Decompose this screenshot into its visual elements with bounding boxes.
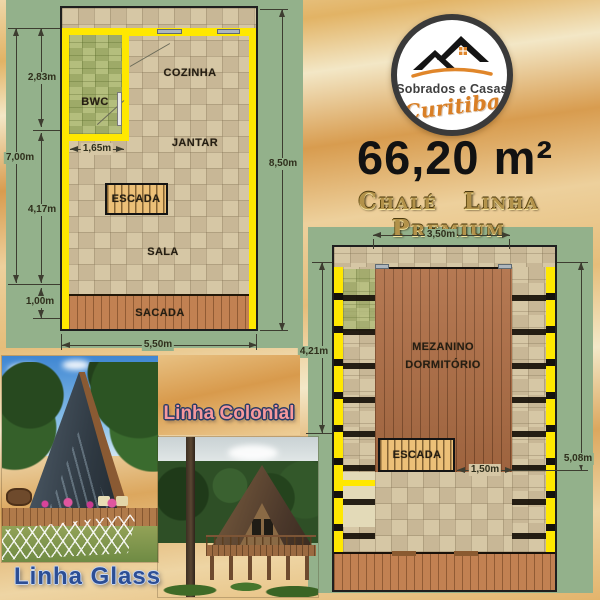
upper-stairs: ESCADA <box>378 438 455 472</box>
roof-beams <box>343 267 375 552</box>
dim-ext <box>373 239 374 249</box>
dim-tick <box>557 262 588 263</box>
dim-arrow-left <box>457 467 465 473</box>
cloud <box>228 445 278 461</box>
poster-canvas: BWC COZINHA JANTAR SALA 1,65m ESCADA SAC… <box>0 0 600 600</box>
room-label-mezzanine-1: MEZANINO <box>412 341 474 353</box>
dim-arrow-up <box>319 262 325 270</box>
dim-ext <box>509 239 510 249</box>
dim-label-total-depth: 8,50m <box>267 158 299 170</box>
dim-arrow-right <box>505 467 513 473</box>
dim-tick <box>513 470 588 471</box>
right-wall <box>546 267 555 552</box>
dim-line <box>282 9 283 331</box>
dim-arrow-right <box>116 146 124 152</box>
left-wall <box>334 267 343 552</box>
dim-label-ground-width: 5,50m <box>142 339 174 351</box>
window-sill <box>157 29 182 34</box>
bwc-room: BWC <box>62 28 129 141</box>
dim-arrow-left <box>373 232 381 238</box>
colonial-caption-patch: Linha Colonial <box>158 355 300 435</box>
dim-tick <box>8 284 60 285</box>
dim-tick <box>260 330 288 331</box>
room-label-dining: JANTAR <box>172 137 218 149</box>
room-label-upper-stairs: ESCADA <box>393 449 442 461</box>
dim-arrow-down <box>38 275 44 283</box>
flowers <box>30 496 130 512</box>
upper-floor-plan: ESCADA MEZANINO DORMITÓRIO 1,50m <box>332 245 557 592</box>
cabin-window <box>252 519 261 535</box>
grass <box>158 563 318 597</box>
bwc-door-leaf <box>117 92 122 126</box>
dim-line <box>581 262 582 470</box>
ground-stairs: ESCADA <box>105 183 168 215</box>
dim-label-stairs-width: 1,50m <box>469 464 501 476</box>
deck-threshold <box>454 551 478 556</box>
dim-arrow-left <box>62 342 70 348</box>
dim-arrow-down <box>38 310 44 318</box>
photo-glass-aframe <box>2 356 158 562</box>
area-value: 66,20 m² <box>320 130 590 185</box>
photo-colonial-aframe <box>158 437 318 597</box>
window-sill <box>498 264 512 269</box>
mezzanine-area: ESCADA MEZANINO DORMITÓRIO 1,50m <box>375 267 512 552</box>
house-roof-icon <box>409 30 495 82</box>
right-roof-strip <box>512 267 546 552</box>
dim-tick <box>306 433 332 434</box>
dim-tick <box>33 130 60 131</box>
entry-door-swing <box>130 43 170 67</box>
room-label-bwc: BWC <box>81 96 108 108</box>
room-label-mezzanine-2: DORMITÓRIO <box>405 359 481 371</box>
dim-label-living-height: 4,17m <box>26 204 58 216</box>
right-wall <box>249 28 256 329</box>
window-sill <box>217 29 240 34</box>
deck-threshold <box>392 551 416 556</box>
brand-logo: Sobrados e Casas Curitiba <box>391 14 513 136</box>
room-label-living: SALA <box>147 246 179 258</box>
dim-arrow-up <box>578 262 584 270</box>
upper-deck <box>334 552 555 590</box>
colonial-caption: Linha Colonial <box>164 403 295 425</box>
dim-label-bwc-width: 1,65m <box>81 143 113 155</box>
room-label-kitchen: COZINHA <box>164 67 217 79</box>
dim-label-bwc-height: 2,83m <box>26 72 58 84</box>
dim-arrow-right <box>502 232 510 238</box>
dim-arrow-up <box>38 133 44 141</box>
dim-tick <box>33 318 60 319</box>
ground-floor-plan: BWC COZINHA JANTAR SALA 1,65m ESCADA SAC… <box>60 6 258 331</box>
roof-beams <box>512 267 546 552</box>
room-label-balcony: SACADA <box>135 307 184 319</box>
dim-tick <box>260 9 288 10</box>
dim-arrow-up <box>38 28 44 36</box>
dim-tick <box>8 28 60 29</box>
open-below-area <box>375 472 512 552</box>
dim-tick <box>312 262 332 263</box>
dim-label-balcony-depth: 1,00m <box>24 296 56 308</box>
left-roof-strip <box>343 267 375 552</box>
dim-arrow-left <box>70 146 78 152</box>
dim-arrow-right <box>249 342 257 348</box>
glass-caption: Linha Glass <box>14 563 161 591</box>
dim-label-total-height: 7,00m <box>4 152 36 164</box>
hot-tub <box>6 488 32 506</box>
window-sill <box>375 264 389 269</box>
dim-label-upper-right-height: 5,08m <box>562 453 594 465</box>
dim-arrow-down <box>13 275 19 283</box>
dim-arrow-up <box>13 28 19 36</box>
dim-arrow-down <box>38 119 44 127</box>
dim-label-upper-width: 3,50m <box>425 229 457 241</box>
dim-arrow-up <box>279 9 285 17</box>
room-label-stairs: ESCADA <box>112 193 161 205</box>
bwc-floor <box>69 35 122 134</box>
dim-label-upper-left-height: 4,21m <box>298 346 330 358</box>
dim-arrow-up <box>38 288 44 296</box>
cabin-deck <box>206 545 316 556</box>
dim-arrow-down <box>319 425 325 433</box>
